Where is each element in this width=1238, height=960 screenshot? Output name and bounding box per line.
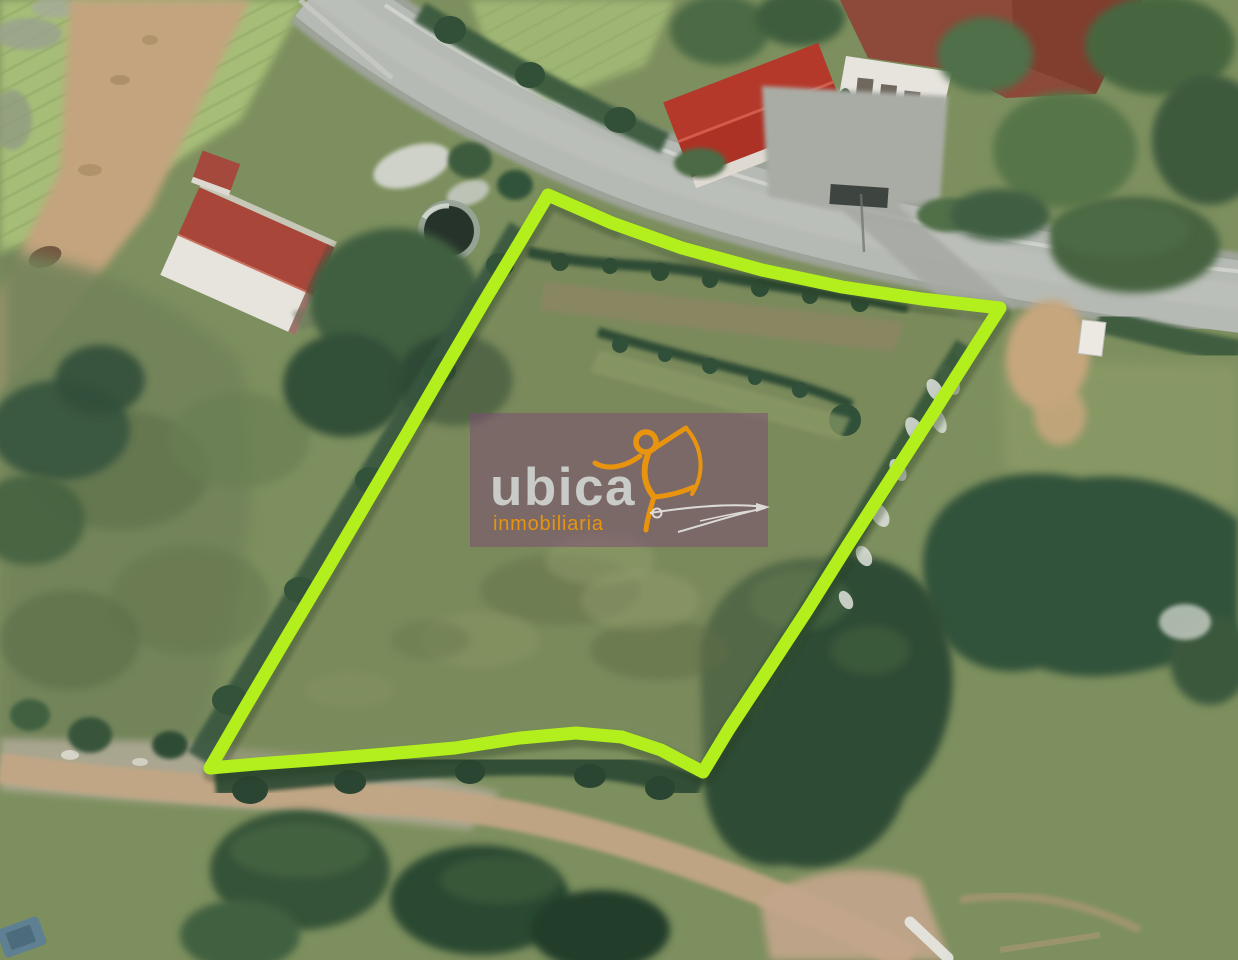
gate [829,184,888,208]
white-shed-east [1078,320,1106,357]
tagline-text: inmobiliaria [493,513,604,535]
aerial-photo: ubica inmobiliaria [0,0,1238,960]
aerial-scene: ubica inmobiliaria [0,0,1238,960]
ubica-logo: ubica inmobiliaria [470,413,770,547]
